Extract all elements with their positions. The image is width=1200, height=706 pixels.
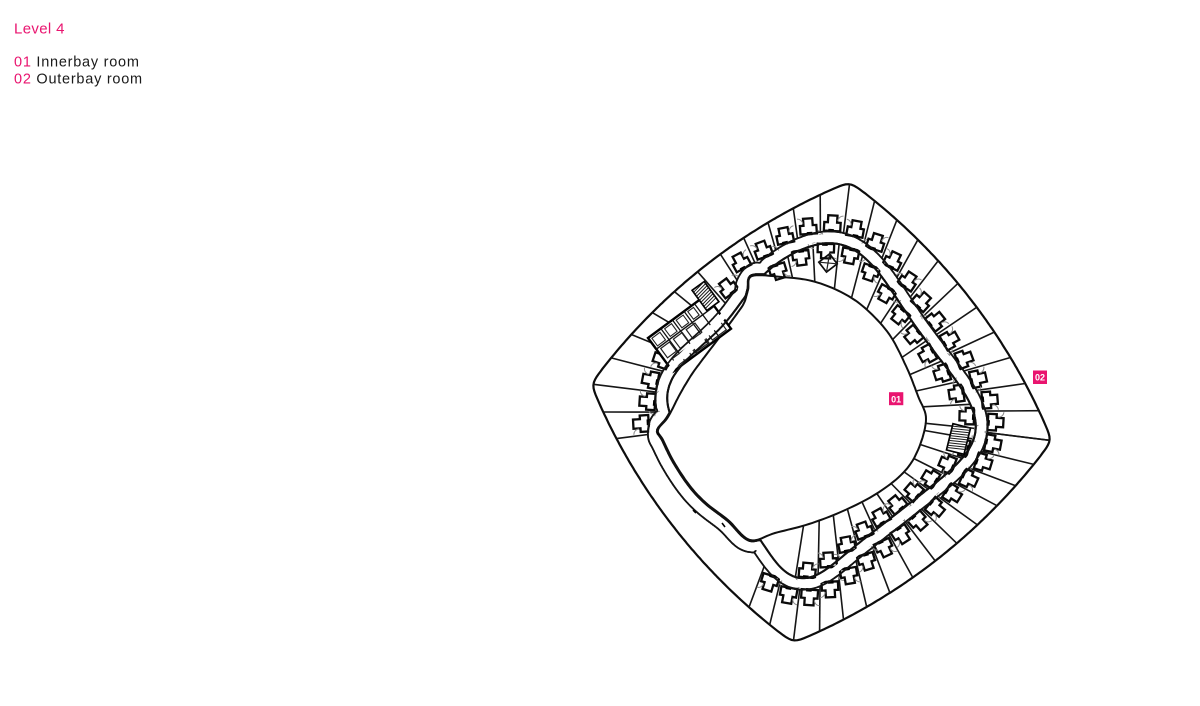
svg-text:02: 02 bbox=[1035, 373, 1045, 383]
svg-text:01 Innerbay room: 01 Innerbay room bbox=[14, 55, 140, 71]
svg-text:02 Outerbay room: 02 Outerbay room bbox=[14, 72, 143, 88]
svg-text:01: 01 bbox=[891, 394, 901, 404]
svg-text:Level 4: Level 4 bbox=[14, 21, 65, 38]
